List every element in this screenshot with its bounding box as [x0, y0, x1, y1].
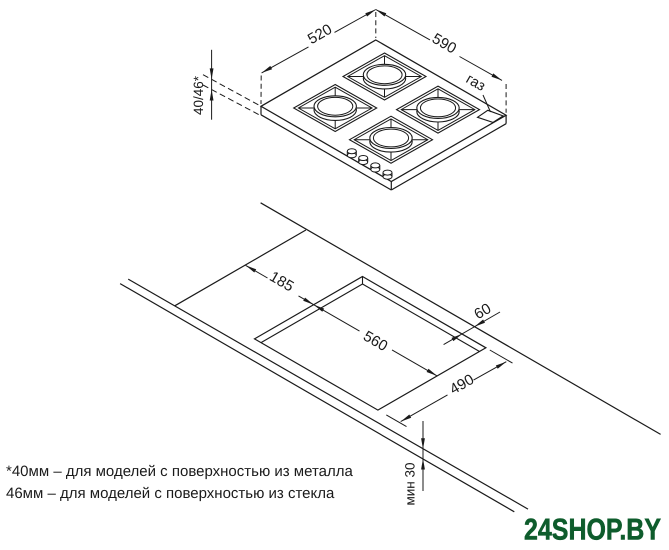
- svg-text:185: 185: [266, 268, 296, 295]
- svg-text:590: 590: [429, 30, 459, 57]
- svg-text:*40мм – для моделей с поверхно: *40мм – для моделей с поверхностью из ме…: [6, 463, 353, 480]
- svg-text:мин 30: мин 30: [402, 462, 417, 505]
- svg-text:520: 520: [305, 21, 335, 48]
- svg-text:24SHOP.BY: 24SHOP.BY: [524, 514, 661, 547]
- svg-text:560: 560: [360, 328, 390, 355]
- svg-text:46мм – для моделей с поверхнос: 46мм – для моделей с поверхностью из сте…: [6, 485, 335, 502]
- svg-text:40/46*: 40/46*: [191, 75, 206, 115]
- svg-text:газ: газ: [463, 71, 488, 95]
- svg-text:60: 60: [471, 300, 494, 323]
- svg-text:490: 490: [447, 371, 477, 398]
